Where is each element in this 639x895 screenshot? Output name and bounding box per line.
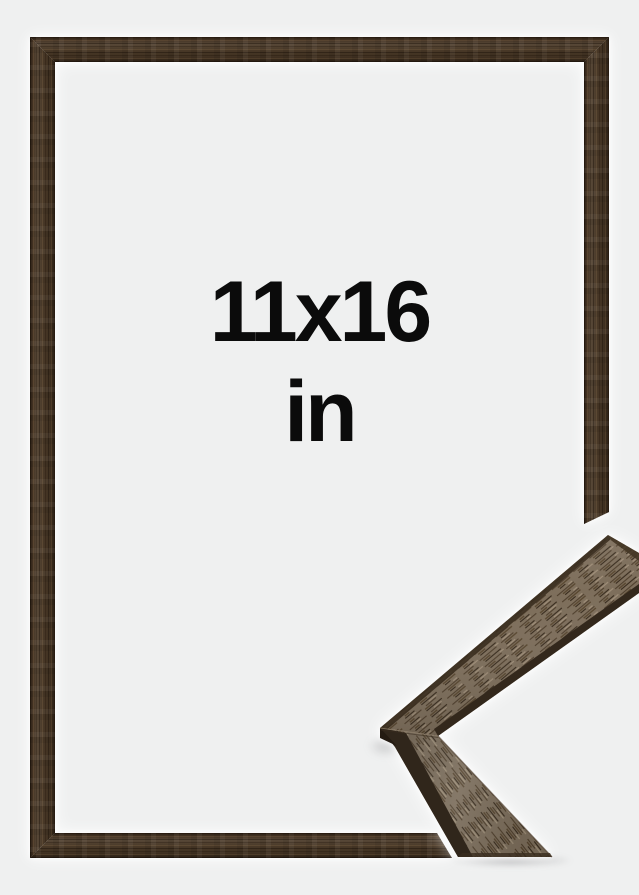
corner-sample-bottom-cut [458,853,552,857]
size-unit: in [0,362,639,462]
product-image: 11x16 in [0,0,639,895]
size-dimensions: 11x16 [0,262,639,362]
corner-sample-upper-arm-sheen [380,535,639,736]
size-label: 11x16 in [0,262,639,462]
frame-top-bar [30,37,609,62]
frame-corner-sample [360,470,639,880]
